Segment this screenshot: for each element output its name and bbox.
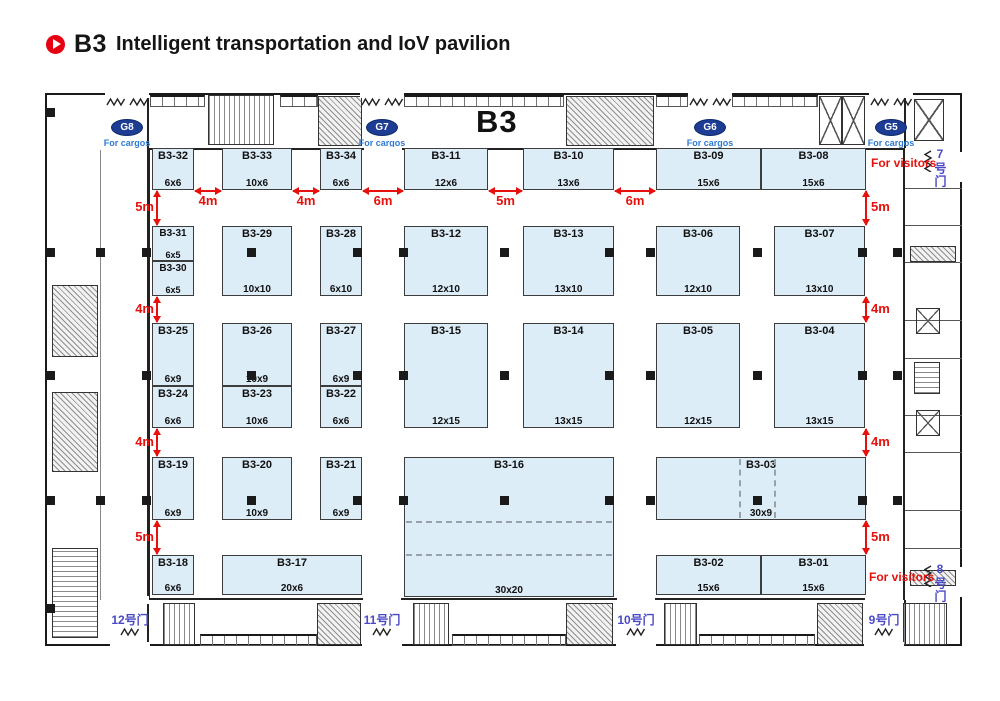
booth-b3-06[interactable]: B3-0612x10	[656, 226, 740, 296]
booth-id: B3-20	[223, 459, 291, 471]
pillar	[858, 371, 867, 380]
booth-id: B3-07	[775, 228, 864, 240]
booth-id: B3-05	[657, 325, 739, 337]
booth-id: B3-24	[153, 388, 193, 400]
booth-b3-28[interactable]: B3-286x10	[320, 226, 362, 296]
booth-id: B3-10	[524, 150, 613, 162]
booth-size: 13x15	[524, 416, 613, 427]
booth-size: 12x6	[405, 178, 487, 189]
room-divider	[905, 358, 962, 359]
pillar	[399, 371, 408, 380]
pillar	[500, 496, 509, 505]
restroom-block	[910, 246, 956, 262]
dimension-arrow	[195, 190, 221, 192]
booth-b3-05[interactable]: B3-0512x15	[656, 323, 740, 428]
pillar	[96, 496, 105, 505]
dimension-label: 5m	[871, 529, 890, 544]
door-spring-icon	[372, 627, 392, 637]
booth-size: 10x9	[223, 374, 291, 385]
pillar	[247, 248, 256, 257]
pillar	[142, 371, 151, 380]
door-spring-icon	[893, 97, 913, 107]
gate-g7: G7	[366, 119, 398, 136]
dimension-arrow	[615, 190, 655, 192]
dimension-label: 4m	[871, 434, 890, 449]
booth-id: B3-09	[657, 150, 760, 162]
gallery-strip	[150, 95, 205, 107]
gallery-strip	[732, 95, 818, 107]
pillar	[142, 248, 151, 257]
booth-b3-25[interactable]: B3-256x9	[152, 323, 194, 386]
booth-id: B3-28	[321, 228, 361, 240]
stairwell	[914, 362, 940, 394]
booth-size: 13x6	[524, 178, 613, 189]
booth-b3-31[interactable]: B3-316x5	[152, 226, 194, 261]
dimension-label: 4m	[297, 193, 316, 208]
door-spring-icon	[874, 627, 894, 637]
dimension-arrow	[865, 297, 867, 322]
dimension-label: 5m	[871, 199, 890, 214]
dimension-label: 4m	[127, 301, 154, 316]
pillar	[605, 371, 614, 380]
booth-id: B3-26	[223, 325, 291, 337]
booth-b3-32[interactable]: B3-326x6	[152, 148, 194, 190]
dimension-arrow	[156, 191, 158, 225]
booth-id: B3-32	[153, 150, 193, 162]
pillar	[605, 248, 614, 257]
elevator-block	[916, 410, 940, 436]
side-door-label: 8号门	[934, 562, 945, 603]
gate-cargo-label: For cargos	[104, 138, 151, 148]
door-spring-icon	[106, 97, 126, 107]
dimension-label: 5m	[496, 193, 515, 208]
dimension-arrow	[293, 190, 319, 192]
booth-id: B3-30	[153, 263, 193, 274]
booth-b3-01[interactable]: B3-0115x6	[761, 555, 866, 595]
booth-id: B3-27	[321, 325, 361, 337]
booth-id: B3-25	[153, 325, 193, 337]
booth-size: 6x5	[153, 250, 193, 260]
dimension-arrow	[156, 429, 158, 456]
booth-size: 15x6	[657, 583, 760, 594]
booth-b3-07[interactable]: B3-0713x10	[774, 226, 865, 296]
room-divider	[905, 510, 962, 511]
dimension-arrow	[363, 190, 403, 192]
pillar	[858, 248, 867, 257]
door-opening	[956, 567, 964, 597]
booth-id: B3-03	[657, 459, 865, 471]
door-spring-icon	[870, 97, 890, 107]
booth-b3-14[interactable]: B3-1413x15	[523, 323, 614, 428]
room-divider	[905, 225, 962, 226]
pillar	[753, 496, 762, 505]
booth-b3-15[interactable]: B3-1512x15	[404, 323, 488, 428]
door-spring-icon	[384, 97, 404, 107]
booth-b3-26[interactable]: B3-2610x9	[222, 323, 292, 386]
booth-b3-17[interactable]: B3-1720x6	[222, 555, 362, 595]
pillar	[399, 248, 408, 257]
booth-id: B3-06	[657, 228, 739, 240]
restroom-block	[317, 603, 361, 645]
elevator-block	[819, 96, 842, 145]
pillar	[893, 496, 902, 505]
booth-size: 6x10	[321, 284, 361, 295]
ramp-block	[52, 548, 98, 638]
booth-size: 6x9	[321, 508, 361, 519]
door-opening	[616, 642, 656, 649]
stairwell	[903, 603, 947, 645]
corridor-line	[100, 150, 101, 600]
booth-size: 10x6	[223, 178, 291, 189]
booth-divider	[406, 521, 612, 523]
restroom-block	[566, 603, 613, 645]
dimension-label: 6m	[626, 193, 645, 208]
pillar	[46, 604, 55, 613]
stair-shaft	[52, 392, 98, 472]
booth-id: B3-15	[405, 325, 487, 337]
restroom-block	[817, 603, 863, 645]
dimension-arrow	[156, 521, 158, 554]
booth-divider	[739, 459, 741, 518]
booth-size: 13x15	[775, 416, 864, 427]
room-divider	[905, 452, 962, 453]
elevator-block	[842, 96, 865, 145]
pillar	[893, 371, 902, 380]
pillar	[353, 371, 362, 380]
booth-b3-23[interactable]: B3-2310x6	[222, 386, 292, 428]
door-spring-icon	[120, 627, 140, 637]
booth-id: B3-31	[153, 228, 193, 239]
door-spring-icon	[626, 627, 646, 637]
door-spring-icon	[129, 97, 149, 107]
booth-id: B3-12	[405, 228, 487, 240]
booth-id: B3-17	[223, 557, 361, 569]
door-opening	[956, 152, 964, 182]
pillar	[46, 371, 55, 380]
booth-size: 15x6	[762, 178, 865, 189]
elevator-block	[914, 99, 944, 141]
booth-b3-18[interactable]: B3-186x6	[152, 555, 194, 595]
booth-size: 12x10	[657, 284, 739, 295]
gallery-strip	[200, 634, 317, 646]
booth-b3-10[interactable]: B3-1013x6	[523, 148, 614, 190]
door-opening	[111, 596, 149, 604]
booth-size: 10x9	[223, 508, 291, 519]
booth-id: B3-23	[223, 388, 291, 400]
booth-size: 20x6	[223, 583, 361, 594]
booth-b3-30[interactable]: B3-306x5	[152, 261, 194, 296]
booth-size: 12x15	[657, 416, 739, 427]
booth-id: B3-04	[775, 325, 864, 337]
booth-size: 6x5	[153, 285, 193, 295]
booth-size: 6x6	[153, 416, 193, 427]
dimension-arrow	[865, 521, 867, 554]
booth-b3-21[interactable]: B3-216x9	[320, 457, 362, 520]
booth-size: 12x15	[405, 416, 487, 427]
stairwell	[163, 603, 195, 645]
pillar	[247, 496, 256, 505]
booth-b3-04[interactable]: B3-0413x15	[774, 323, 865, 428]
dimension-arrow	[865, 191, 867, 225]
door-spring-icon	[689, 97, 709, 107]
booth-b3-16[interactable]: B3-1630x20	[404, 457, 614, 597]
restroom-block	[318, 96, 362, 146]
booth-size: 10x6	[223, 416, 291, 427]
floor-plan: B3 B3-326x6B3-3310x6B3-346x6B3-1112x6B3-…	[0, 0, 1000, 701]
booth-divider	[774, 459, 776, 518]
visitors-label: For visitors	[869, 570, 934, 584]
door-spring-icon	[712, 97, 732, 107]
booth-size: 10x10	[223, 284, 291, 295]
visitors-label: For visitors	[871, 156, 936, 170]
gate-opening	[364, 147, 402, 153]
door-opening	[865, 596, 903, 604]
booth-b3-02[interactable]: B3-0215x6	[656, 555, 761, 595]
booth-divider	[406, 554, 612, 556]
door-spring-icon	[361, 97, 381, 107]
booth-b3-22[interactable]: B3-226x6	[320, 386, 362, 428]
booth-id: B3-14	[524, 325, 613, 337]
booth-id: B3-19	[153, 459, 193, 471]
pillar	[46, 248, 55, 257]
booth-id: B3-22	[321, 388, 361, 400]
booth-id: B3-13	[524, 228, 613, 240]
pillar	[646, 496, 655, 505]
pillar	[247, 371, 256, 380]
dimension-label: 6m	[374, 193, 393, 208]
booth-b3-24[interactable]: B3-246x6	[152, 386, 194, 428]
booth-b3-08[interactable]: B3-0815x6	[761, 148, 866, 190]
pillar	[753, 371, 762, 380]
gallery-strip	[699, 634, 815, 646]
booth-size: 6x9	[153, 508, 193, 519]
pillar	[646, 371, 655, 380]
room-divider	[905, 262, 962, 263]
door-opening	[363, 596, 401, 604]
booth-id: B3-01	[762, 557, 865, 569]
booth-id: B3-11	[405, 150, 487, 162]
gate-g5: G5	[875, 119, 907, 136]
booth-b3-13[interactable]: B3-1313x10	[523, 226, 614, 296]
stair-shaft	[52, 285, 98, 357]
booth-size: 13x10	[775, 284, 864, 295]
hall-label: B3	[476, 104, 518, 140]
booth-b3-03[interactable]: B3-0330x9	[656, 457, 866, 520]
dimension-label: 4m	[127, 434, 154, 449]
booth-id: B3-33	[223, 150, 291, 162]
pillar	[353, 248, 362, 257]
pillar	[753, 248, 762, 257]
stairwell	[664, 603, 697, 645]
booth-id: B3-21	[321, 459, 361, 471]
dimension-label: 5m	[127, 199, 154, 214]
booth-size: 15x6	[657, 178, 760, 189]
pillar	[46, 108, 55, 117]
gate-cargo-label: For cargos	[687, 138, 734, 148]
door-opening	[110, 642, 150, 649]
pillar	[646, 248, 655, 257]
bottom-door-label: 11号门	[364, 611, 401, 628]
booth-size: 13x10	[524, 284, 613, 295]
booth-id: B3-34	[321, 150, 361, 162]
pillar	[399, 496, 408, 505]
booth-id: B3-18	[153, 557, 193, 569]
pillar	[500, 371, 509, 380]
pillar	[96, 248, 105, 257]
booth-b3-19[interactable]: B3-196x9	[152, 457, 194, 520]
booth-id: B3-08	[762, 150, 865, 162]
pillar	[142, 496, 151, 505]
booth-b3-20[interactable]: B3-2010x9	[222, 457, 292, 520]
elevator-block	[916, 308, 940, 334]
booth-b3-11[interactable]: B3-1112x6	[404, 148, 488, 190]
gate-g6: G6	[694, 119, 726, 136]
dimension-label: 5m	[127, 529, 154, 544]
booth-size: 6x6	[321, 178, 361, 189]
booth-size: 6x6	[153, 178, 193, 189]
door-opening	[617, 596, 655, 604]
booth-size: 12x10	[405, 284, 487, 295]
dimension-arrow	[865, 429, 867, 456]
dimension-arrow	[489, 190, 522, 192]
bottom-door-label: 10号门	[617, 611, 654, 628]
pillar	[353, 496, 362, 505]
pillar	[858, 496, 867, 505]
bottom-door-label: 12号门	[111, 611, 148, 628]
booth-size: 6x6	[153, 583, 193, 594]
floorplan-page: B3 Intelligent transportation and IoV pa…	[0, 0, 1000, 701]
pillar	[500, 248, 509, 257]
booth-id: B3-02	[657, 557, 760, 569]
booth-b3-12[interactable]: B3-1212x10	[404, 226, 488, 296]
pillar	[893, 248, 902, 257]
gallery-strip	[656, 95, 688, 107]
bottom-door-label: 9号门	[869, 611, 900, 628]
booth-b3-29[interactable]: B3-2910x10	[222, 226, 292, 296]
room-divider	[905, 188, 962, 189]
booth-size: 30x9	[657, 508, 865, 519]
gallery-strip	[452, 634, 566, 646]
door-opening	[362, 642, 402, 649]
room-divider	[905, 548, 962, 549]
booth-size: 6x9	[153, 374, 193, 385]
stairwell	[413, 603, 449, 645]
booth-size: 30x20	[405, 585, 613, 596]
restroom-block	[566, 96, 654, 146]
dimension-label: 4m	[871, 301, 890, 316]
stairwell	[208, 95, 274, 145]
gate-cargo-label: For cargos	[868, 138, 915, 148]
dimension-label: 4m	[199, 193, 218, 208]
gallery-strip	[280, 95, 318, 107]
booth-size: 6x6	[321, 416, 361, 427]
pillar	[46, 496, 55, 505]
booth-size: 15x6	[762, 583, 865, 594]
booth-id: B3-29	[223, 228, 291, 240]
booth-id: B3-16	[405, 459, 613, 471]
booth-b3-34[interactable]: B3-346x6	[320, 148, 362, 190]
dimension-arrow	[156, 297, 158, 322]
booth-b3-09[interactable]: B3-0915x6	[656, 148, 761, 190]
booth-b3-33[interactable]: B3-3310x6	[222, 148, 292, 190]
door-opening	[864, 642, 904, 649]
pillar	[605, 496, 614, 505]
gate-g8: G8	[111, 119, 143, 136]
